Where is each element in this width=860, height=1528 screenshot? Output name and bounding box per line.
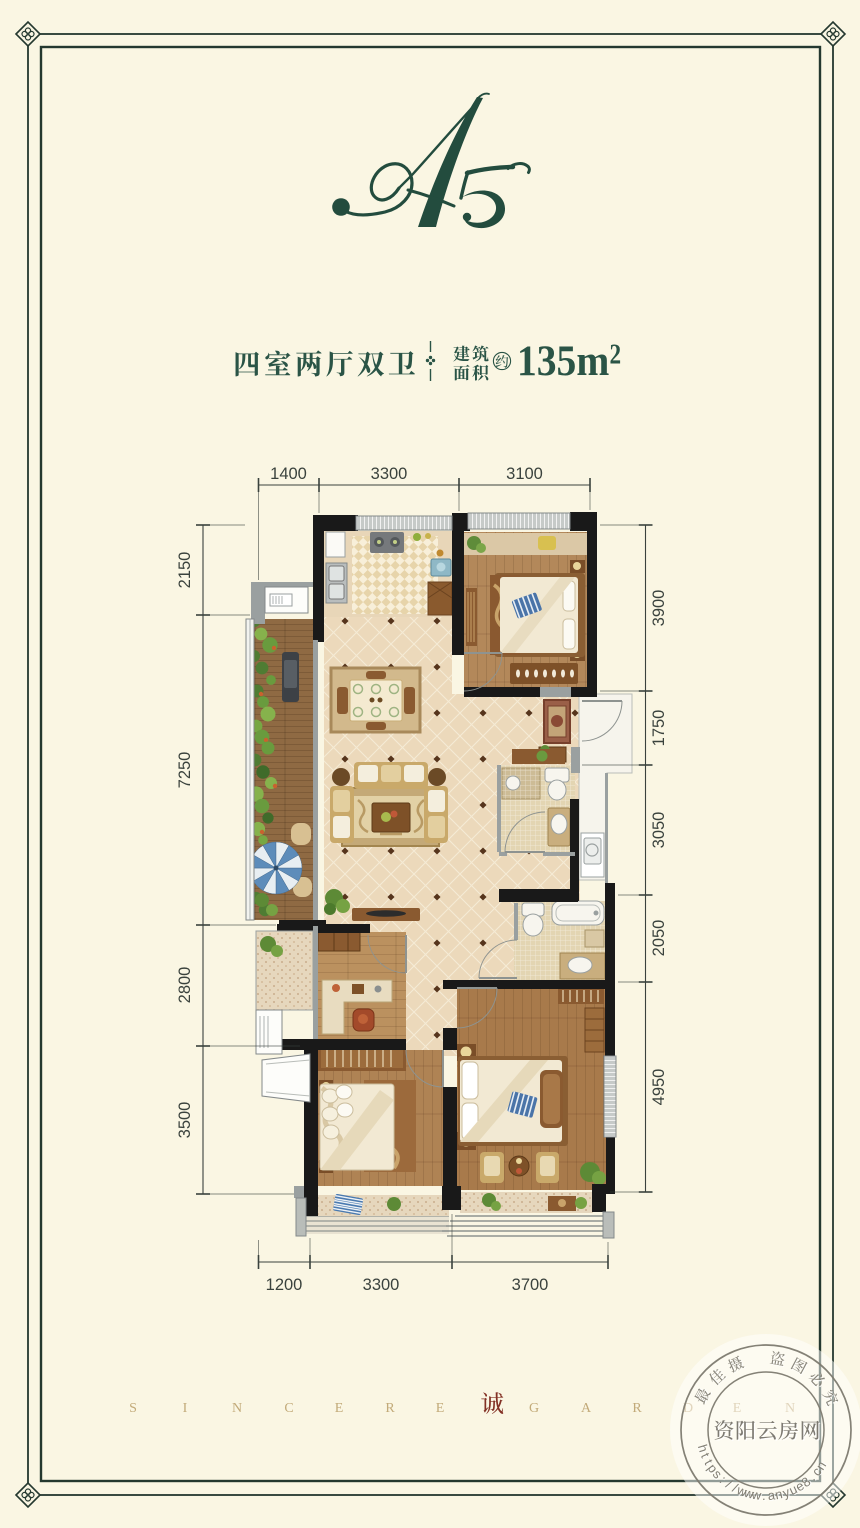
svg-text:3300: 3300 (371, 465, 408, 483)
svg-text:A: A (581, 1401, 592, 1416)
svg-text:1200: 1200 (266, 1276, 303, 1294)
svg-text:4950: 4950 (650, 1069, 668, 1106)
svg-text:3700: 3700 (512, 1276, 549, 1294)
svg-text:2: 2 (610, 338, 622, 370)
svg-text:N: N (232, 1401, 242, 1416)
svg-text:.: . (762, 1488, 766, 1503)
svg-text:3900: 3900 (650, 590, 668, 627)
svg-text:R: R (385, 1401, 395, 1416)
svg-text:3050: 3050 (650, 812, 668, 849)
svg-text:I: I (183, 1401, 188, 1416)
svg-text:3300: 3300 (363, 1276, 400, 1294)
svg-text:2050: 2050 (650, 920, 668, 957)
svg-text:E: E (335, 1401, 344, 1416)
svg-text:S: S (129, 1401, 137, 1416)
svg-text:7250: 7250 (176, 752, 194, 789)
svg-text:3500: 3500 (176, 1102, 194, 1139)
svg-text:1400: 1400 (270, 465, 307, 483)
svg-text:R: R (632, 1401, 642, 1416)
svg-text:1750: 1750 (650, 710, 668, 747)
svg-text:135m: 135m (517, 336, 609, 384)
svg-text:3100: 3100 (506, 465, 543, 483)
svg-text:C: C (284, 1401, 293, 1416)
svg-text:E: E (436, 1401, 445, 1416)
svg-text:2150: 2150 (176, 552, 194, 589)
svg-text:2800: 2800 (176, 967, 194, 1004)
svg-text:G: G (529, 1401, 539, 1416)
